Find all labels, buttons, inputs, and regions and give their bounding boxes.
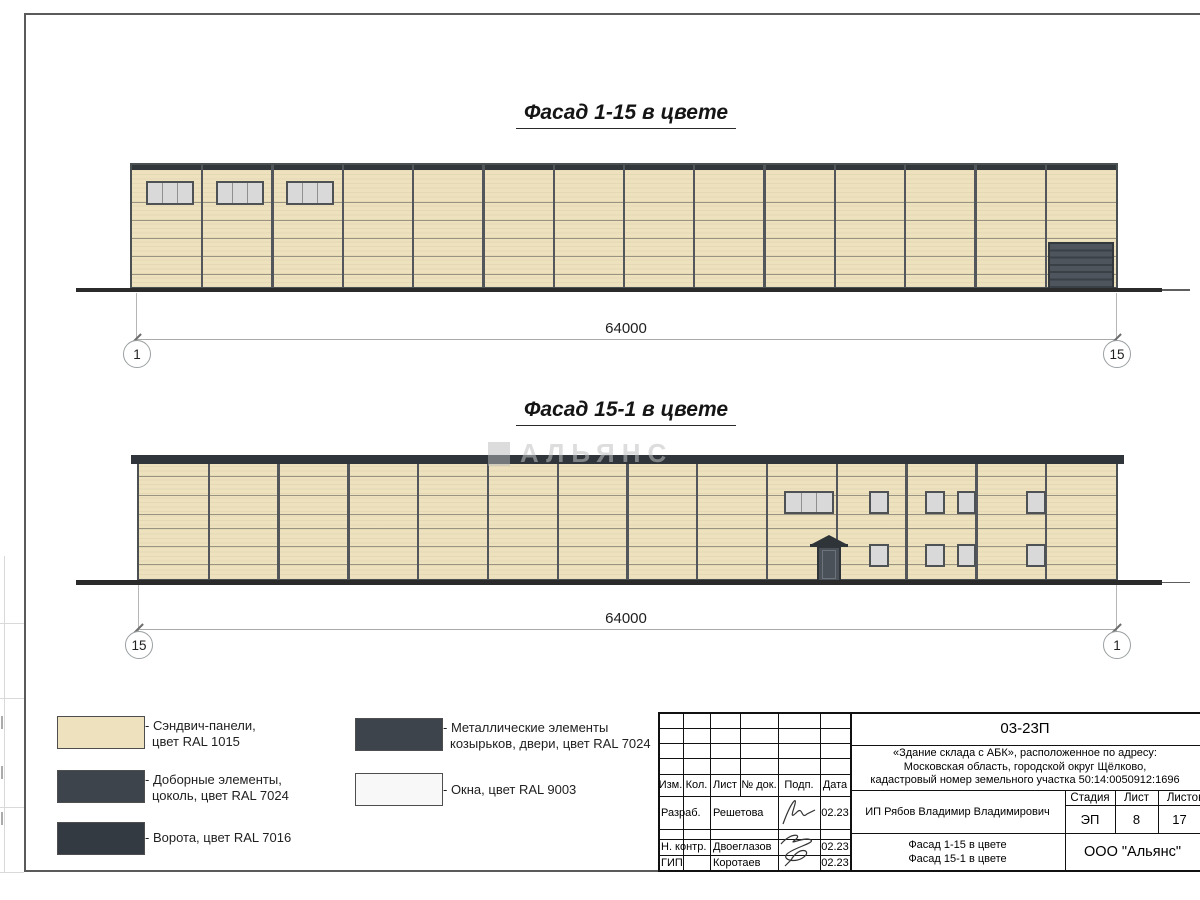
panel-joint-vertical: [201, 165, 203, 287]
parapet-band: [131, 455, 1124, 464]
margin-text-fragment: [1, 716, 4, 729]
panel-joint-vertical: [412, 165, 414, 287]
margin-line: [0, 807, 24, 808]
panel-joint-vertical: [347, 457, 349, 579]
window: [1026, 544, 1046, 567]
panel-joint-vertical: [834, 165, 836, 287]
title-block: Изм. Кол. Лист № док. Подп. Дата Разраб.…: [658, 712, 1200, 872]
window-pane: [317, 183, 332, 203]
legend-label: - Сэндвич-панели,цвет RAL 1015: [145, 718, 256, 749]
window-pane: [302, 183, 317, 203]
tb-company: ООО "Альянс": [1065, 833, 1200, 870]
window-pane: [162, 183, 177, 203]
legend-label: - Окна, цвет RAL 9003: [443, 782, 576, 798]
panel-joint-vertical: [553, 165, 555, 287]
axis-number: 15: [131, 638, 146, 653]
window: [925, 491, 945, 514]
frame-top: [24, 13, 1200, 15]
tb-object-description: «Здание склада с АБК», расположенное по …: [850, 745, 1200, 790]
door-canopy-bar: [810, 544, 848, 547]
tb-role: Н. контр.: [661, 839, 711, 855]
window-pane: [871, 493, 887, 512]
legend-swatch-gates: [57, 822, 145, 855]
legend-swatch-sandwich-panels: [57, 716, 145, 749]
window-pane: [927, 493, 943, 512]
window-pane: [927, 546, 943, 565]
tb-date: 02.23: [820, 855, 850, 870]
margin-text-fragment: [1, 766, 4, 779]
axis-number: 1: [1113, 638, 1121, 653]
frame-left: [24, 13, 26, 872]
signature: [775, 830, 821, 870]
axis-marker-15: 15: [1103, 340, 1131, 368]
tb-document-code: 03-23П: [850, 712, 1200, 745]
window: [286, 181, 334, 205]
panel-joint-vertical: [342, 165, 344, 287]
window: [784, 491, 834, 514]
axis-number: 15: [1109, 347, 1124, 362]
window-pane: [1028, 546, 1044, 565]
margin-line: [0, 623, 24, 624]
tb-stage-value: ЭП: [1065, 805, 1115, 833]
ground-line-extension: [1162, 582, 1190, 584]
tb-sheet-label: Лист: [1115, 790, 1158, 805]
panel-joint-vertical: [208, 457, 210, 579]
panel-joint-vertical: [696, 457, 698, 579]
window-pane: [959, 493, 974, 512]
drawing-sheet: Фасад 1-15 в цвете Фасад 15-1 в цвете 64…: [0, 0, 1200, 900]
tb-col-data: Дата: [820, 774, 850, 796]
panel-joint-vertical: [974, 165, 976, 287]
legend-label: - Ворота, цвет RAL 7016: [145, 830, 291, 846]
tb-col-ndok: № док.: [740, 774, 778, 796]
facade1-elevation: [130, 163, 1118, 289]
panel-joint-vertical: [487, 457, 489, 579]
axis-marker-15: 15: [125, 631, 153, 659]
panel-joint-vertical: [277, 457, 279, 579]
gate: [1048, 242, 1114, 291]
panel-joint-vertical: [763, 165, 765, 287]
facade2-title: Фасад 15-1 в цвете: [420, 398, 832, 426]
tb-sheet-title: Фасад 1-15 в цвете Фасад 15-1 в цвете: [850, 833, 1065, 870]
dimension-value: 64000: [566, 610, 686, 627]
window: [869, 491, 889, 514]
legend-label: - Доборные элементы,цоколь, цвет RAL 702…: [145, 772, 289, 803]
tb-col-podp: Подп.: [778, 774, 820, 796]
ground-line: [76, 288, 1162, 293]
panel-joint-vertical: [904, 165, 906, 287]
tb-client: ИП Рябов Владимир Владимирович: [850, 790, 1065, 833]
axis-marker-1: 1: [1103, 631, 1131, 659]
window: [216, 181, 264, 205]
tb-name: Двоеглазов: [713, 839, 777, 855]
tb-sheets-label: Листов: [1158, 790, 1200, 805]
margin-line: [0, 872, 24, 873]
panel-joint-vertical: [693, 165, 695, 287]
legend-swatch-metal-elements: [355, 718, 443, 751]
tb-col-list: Лист: [710, 774, 740, 796]
panel-joint-vertical: [1045, 165, 1047, 287]
axis-number: 1: [133, 347, 141, 362]
legend-label: - Металлические элементыкозырьков, двери…: [443, 720, 651, 751]
window-pane: [801, 493, 817, 512]
tb-date: 02.23: [820, 796, 850, 829]
panel-joint-vertical: [271, 165, 273, 287]
panel-joint-vertical: [557, 457, 559, 579]
tb-col-izm: Изм.: [658, 774, 683, 796]
dimension-line: [136, 339, 1117, 340]
tb-role: ГИП: [661, 855, 711, 870]
panel-joint-vertical: [766, 457, 768, 579]
door: [817, 546, 841, 583]
window-pane: [232, 183, 247, 203]
window-pane: [959, 546, 974, 565]
window-pane: [816, 493, 832, 512]
signature: [777, 794, 821, 830]
window-pane: [288, 183, 302, 203]
margin-line: [0, 698, 24, 699]
axis-marker-1: 1: [123, 340, 151, 368]
tb-stage-label: Стадия: [1065, 790, 1115, 805]
window-pane: [148, 183, 162, 203]
window: [146, 181, 194, 205]
dimension-value: 64000: [566, 320, 686, 337]
window-pane: [1028, 493, 1044, 512]
panel-joint-vertical: [626, 457, 628, 579]
ground-line: [76, 580, 1162, 585]
facade1-title: Фасад 1-15 в цвете: [420, 101, 832, 129]
panel-joint-vertical: [482, 165, 484, 287]
margin-line-vertical: [4, 556, 5, 872]
window-pane: [177, 183, 192, 203]
window: [957, 544, 976, 567]
tb-name: Решетова: [713, 796, 777, 829]
panel-joint-vertical: [417, 457, 419, 579]
tb-sheets-value: 17: [1158, 805, 1200, 833]
legend-swatch-windows: [355, 773, 443, 806]
window: [925, 544, 945, 567]
facade2-elevation: [137, 455, 1118, 581]
margin-text-fragment: [1, 812, 4, 825]
window-pane: [218, 183, 232, 203]
panel-joint-vertical: [905, 457, 907, 579]
legend-swatch-base-elements: [57, 770, 145, 803]
tb-date: 02.23: [820, 839, 850, 855]
dimension-line: [138, 629, 1117, 630]
tb-sheet-value: 8: [1115, 805, 1158, 833]
window-pane: [247, 183, 262, 203]
window: [869, 544, 889, 567]
window-pane: [786, 493, 801, 512]
tb-col-kol: Кол.: [683, 774, 710, 796]
tb-role: Разраб.: [661, 796, 711, 829]
ground-line-extension: [1162, 289, 1190, 291]
window-pane: [871, 546, 887, 565]
tb-name: Коротаев: [713, 855, 777, 870]
panel-joint-vertical: [623, 165, 625, 287]
window: [1026, 491, 1046, 514]
window: [957, 491, 976, 514]
